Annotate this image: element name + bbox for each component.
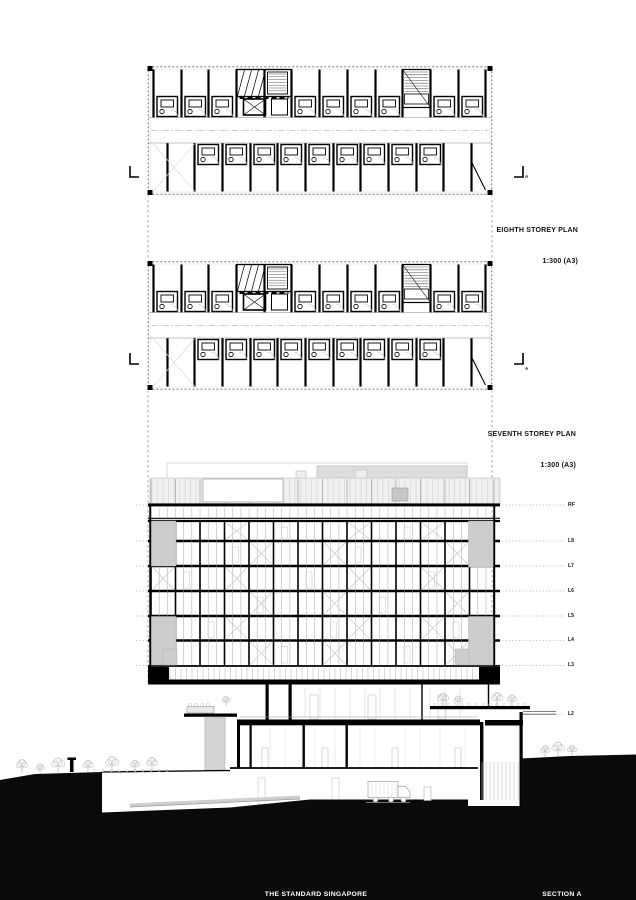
truck-drawing — [366, 782, 431, 803]
project-name: THE STANDARD SINGAPORE — [251, 889, 381, 900]
level-label-l7: L7 — [568, 563, 590, 569]
plan-scale: 1:300 (A3) — [446, 461, 576, 472]
level-label-l2: L2 — [568, 711, 590, 717]
level-label-l6: L6 — [568, 588, 590, 594]
titleblock-drawing: SECTION A 1:300 (A3) — [512, 866, 612, 900]
plan-title: SEVENTH STOREY PLAN — [446, 430, 576, 441]
drawing-sheet: EIGHTH STOREY PLAN 1:300 (A3) SEVENTH ST… — [0, 0, 636, 900]
floor-plan-eighth-storey — [147, 65, 494, 196]
level-label-rf: RF — [568, 502, 590, 508]
tree-drawings — [16, 693, 576, 774]
plan-scale: 1:300 (A3) — [448, 257, 578, 268]
plan-title: EIGHTH STOREY PLAN — [448, 226, 578, 237]
level-label-l4: L4 — [568, 637, 590, 643]
floor-plan-seventh-storey — [147, 260, 494, 391]
level-label-l3: L3 — [568, 662, 590, 668]
level-label-l5: L5 — [568, 613, 590, 619]
titleblock-project: THE STANDARD SINGAPORE DP ARCHITECTS PTE… — [251, 866, 381, 900]
section-marker-letter: A — [525, 366, 528, 371]
drawing-title: SECTION A — [512, 889, 612, 900]
section-tower-block — [148, 503, 500, 684]
level-label-l8: L8 — [568, 538, 590, 544]
plan-label-seventh: SEVENTH STOREY PLAN 1:300 (A3) — [446, 409, 576, 493]
section-marker-letter: A — [525, 174, 528, 179]
plan-label-eighth: EIGHTH STOREY PLAN 1:300 (A3) — [448, 205, 578, 289]
